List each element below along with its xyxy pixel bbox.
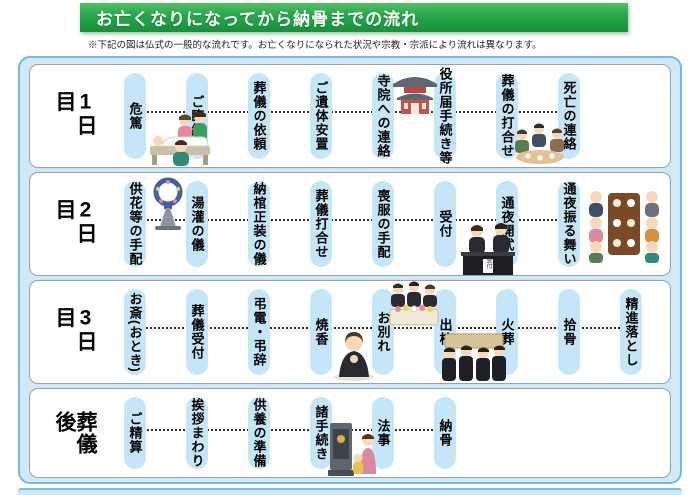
step-label: 焼香 [315,318,328,346]
step-label: ご精算 [129,412,142,454]
step-label: 葬儀の依頼 [253,81,266,151]
deathbed-illustration [148,110,216,166]
reception-desk-illustration: 受付 [461,219,515,275]
flow-step: 葬儀受付 [166,281,228,383]
flow-step: お斎(おとき) [104,281,166,383]
flow-step: 精進落とし [600,281,662,383]
page-title: お亡くなりになってから納骨までの流れ [80,5,419,30]
flow-step: 拾骨 [538,281,600,383]
step-label: 供花等の手配 [129,182,142,266]
step-label: 挨拶まわり [191,398,204,468]
temple-illustration [391,69,439,115]
step-label: 諸手続き [315,405,328,461]
flow-step: ご遺体安置 [290,65,352,167]
step-label: 弔電・弔辞 [253,297,266,367]
row-day2: 2日目 供花等の手配湯灌の儀納棺正装の儀葬儀打合せ喪服の手配受付通夜開式通夜振る… [29,172,671,276]
step-label: 受付 [439,210,452,238]
wake-meal-illustration [584,185,664,263]
flow-step: ご精算 [104,389,166,477]
row-day3: 3日目 お斎(おとき)葬儀受付弔電・弔辞焼香お別れ出棺火葬拾骨精進落とし [29,280,671,384]
flow-step: 葬儀の依頼 [228,65,290,167]
step-label: 寺院への連絡 [377,74,390,158]
flow-diagram-container: 1日目 危篤ご臨終葬儀の依頼ご遺体安置寺院への連絡役所届手続き等葬儀の打合せ死亡… [18,56,682,484]
step-label: 葬儀受付 [191,304,204,360]
step-label: 拾骨 [563,318,576,346]
disclaimer-note: ※下記の図は仏式の一般的な流れです。お亡くなりになられた状況や宗教・宗派により流… [88,37,542,51]
row-day1: 1日目 危篤ご臨終葬儀の依頼ご遺体安置寺院への連絡役所届手続き等葬儀の打合せ死亡… [29,64,671,168]
step-label: 通夜振る舞い [563,182,576,266]
step-label: 精進落とし [625,297,638,367]
flow-step: 弔電・弔辞 [228,281,290,383]
page-title-bar: お亡くなりになってから納骨までの流れ [80,3,628,32]
flower-stand-illustration [149,177,187,231]
step-label: 役所届手続き等 [439,67,452,165]
step-label: 葬儀打合せ [315,189,328,259]
funeral-flow-page: お亡くなりになってから納骨までの流れ ※下記の図は仏式の一般的な流れです。お亡く… [0,0,700,495]
step-label: 納骨 [439,419,452,447]
reception-sign-label: 受付 [485,256,492,270]
steps-day2: 供花等の手配湯灌の儀納棺正装の儀葬儀打合せ喪服の手配受付通夜開式通夜振る舞い [30,173,670,275]
next-section-edge [18,488,682,495]
step-label: 湯灌の儀 [191,196,204,252]
steps-day1: 危篤ご臨終葬儀の依頼ご遺体安置寺院への連絡役所届手続き等葬儀の打合せ死亡の連絡 [30,65,670,167]
step-label: 危篤 [129,102,142,130]
row-after-funeral: 葬儀後 ご精算挨拶まわり供養の準備諸手続き法事納骨 [29,388,671,478]
step-label: 葬儀の打合せ [501,74,514,158]
flow-step: 納骨 [414,389,476,477]
flow-step: 挨拶まわり [166,389,228,477]
incense-prayer-illustration [332,319,376,381]
home-altar-illustration [328,420,380,476]
step-label: お斎(おとき) [129,292,142,373]
pallbearers-illustration [437,326,509,382]
flow-step: 納棺正装の儀 [228,173,290,275]
meeting-illustration [514,119,566,165]
flow-step: 供養の準備 [228,389,290,477]
flow-step: 喪服の手配 [352,173,414,275]
flow-step: 葬儀打合せ [290,173,352,275]
step-label: 供養の準備 [253,398,266,468]
step-label: ご遺体安置 [315,81,328,151]
step-label: 喪服の手配 [377,189,390,259]
step-label: 納棺正装の儀 [253,182,266,266]
coffin-farewell-illustration [388,281,440,333]
